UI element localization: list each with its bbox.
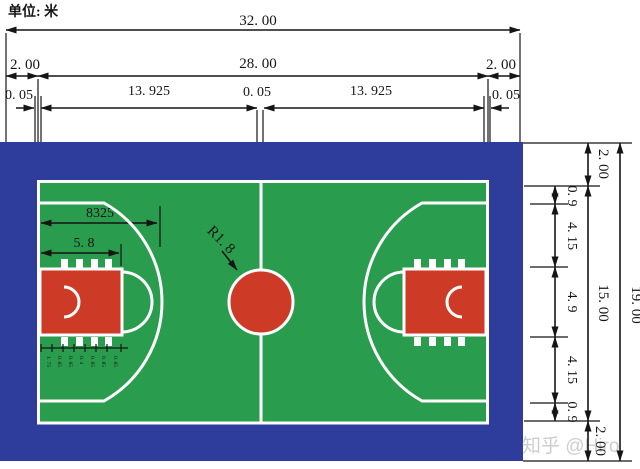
dim-seg3: 4. 15 bbox=[564, 356, 579, 384]
right-dimension-block: 0. 9 4. 15 4. 9 4. 15 0. 9 2. 00 15. 00 … bbox=[523, 143, 640, 461]
dim-lw-right: 0. 05 bbox=[492, 88, 520, 103]
lane-mark-label: 0. 85 bbox=[89, 356, 95, 367]
dim-right-margin: 2. 00 bbox=[486, 57, 516, 73]
lane-mark-label: 1. 75 bbox=[45, 356, 51, 367]
dim-total-height: 19. 00 bbox=[628, 286, 640, 324]
diagram-canvas: 单位: 米 32. 00 2. 00 28. 00 2. 00 0. 05 13… bbox=[0, 0, 640, 469]
dim-seg1: 4. 15 bbox=[564, 222, 579, 250]
dim-free-throw-dist: 5. 8 bbox=[74, 236, 95, 251]
dim-inner-width: 28. 00 bbox=[239, 56, 277, 72]
left-key-area bbox=[40, 269, 122, 335]
top-dimension-block: 单位: 米 32. 00 2. 00 28. 00 2. 00 0. 05 13… bbox=[5, 3, 520, 142]
lane-mark-label: 0. 85 bbox=[100, 356, 106, 367]
dim-half-left: 13. 925 bbox=[128, 84, 170, 99]
dim-total-width: 32. 00 bbox=[239, 13, 277, 29]
dim-seg4: 0. 9 bbox=[564, 402, 579, 423]
right-key-area bbox=[404, 269, 486, 335]
dim-lw-center: 0. 05 bbox=[243, 85, 271, 100]
center-circle bbox=[229, 270, 293, 334]
lane-mark-label: 0. 85 bbox=[56, 356, 62, 367]
dim-inner-height: 15. 00 bbox=[595, 284, 611, 322]
dim-seg0: 0. 9 bbox=[564, 186, 579, 207]
lane-mark-label: 0. 85 bbox=[67, 356, 73, 367]
lane-mark-label: 0. 85 bbox=[112, 356, 118, 367]
dim-half-right: 13. 925 bbox=[350, 84, 392, 99]
dim-left-margin: 2. 00 bbox=[10, 57, 40, 73]
lane-mark-label: 0. 4 bbox=[78, 356, 84, 365]
unit-label: 单位: 米 bbox=[8, 3, 59, 20]
dim-top-margin: 2. 00 bbox=[595, 149, 611, 179]
dim-bottom-margin: 2. 00 bbox=[592, 426, 608, 456]
basketball-court-dimension-diagram: 单位: 米 32. 00 2. 00 28. 00 2. 00 0. 05 13… bbox=[0, 0, 640, 469]
dim-lw-left: 0. 05 bbox=[5, 88, 33, 103]
court-drawing: 8325 5. 8 R1. 8 1. 75 0. 85 0. 85 0. 4 0… bbox=[0, 142, 523, 461]
dim-seg2: 4. 9 bbox=[564, 292, 579, 313]
